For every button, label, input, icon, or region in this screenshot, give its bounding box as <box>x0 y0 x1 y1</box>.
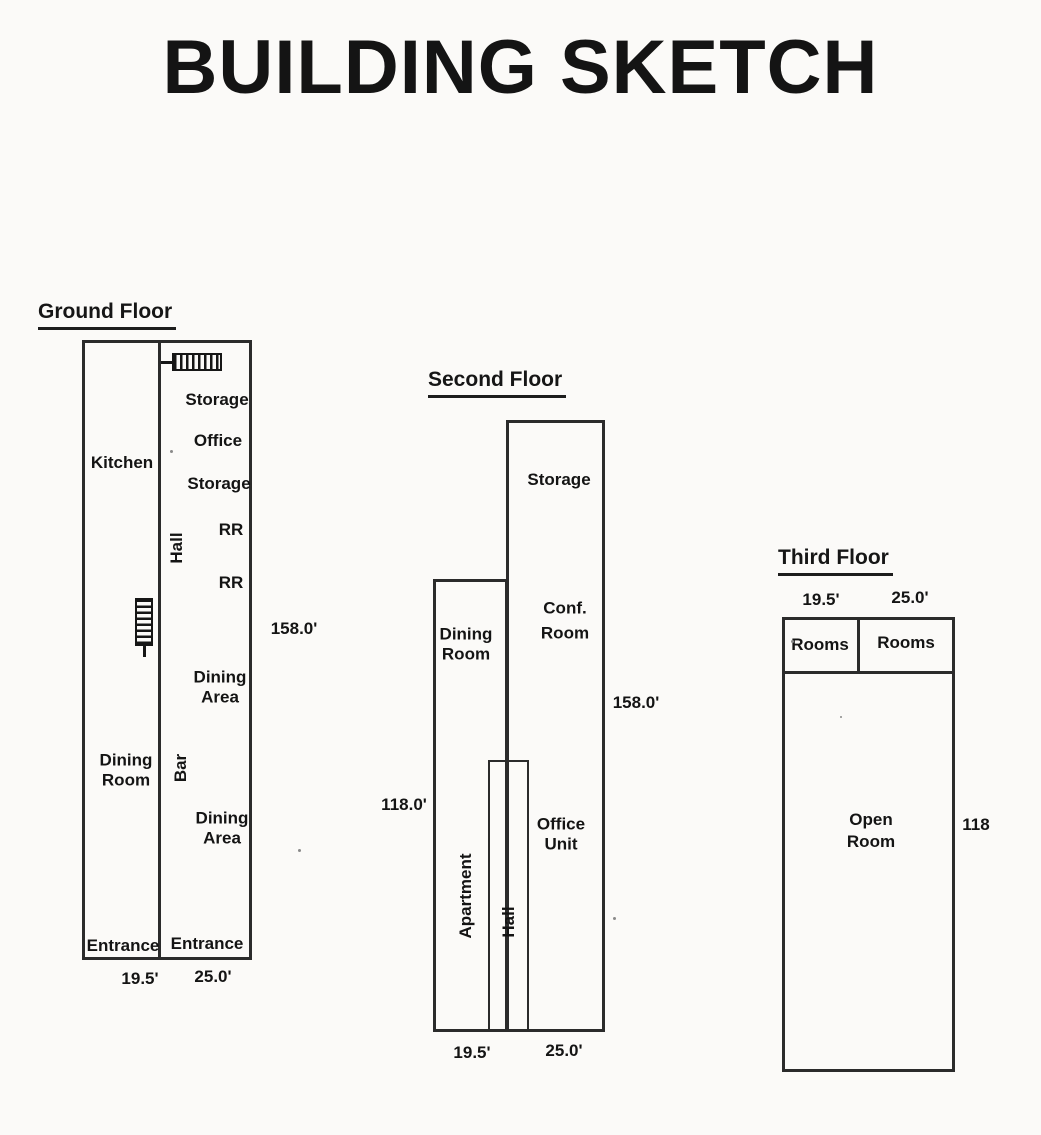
room-label-dining-area-lower: Dining Area <box>189 809 255 850</box>
room-label-rr-upper: RR <box>219 520 244 540</box>
room-label-hall: Hall <box>167 532 187 563</box>
dimension-label-third-depth: 118 <box>962 815 989 835</box>
dimension-label-second-right-depth: 158.0' <box>613 693 660 713</box>
room-label-bar: Bar <box>171 754 191 782</box>
room-label-dining-area-upper: Dining Area <box>187 668 253 709</box>
scan-speck <box>170 450 173 453</box>
dimension-label-third-right-width: 25.0' <box>891 588 928 608</box>
room-label-storage-top: Storage <box>185 390 248 410</box>
third-floor-rooms-center-wall <box>857 617 860 673</box>
building-sketch-sheet: BUILDING SKETCH Ground Floor Kitchen Sto… <box>0 0 1041 1135</box>
room-label-storage-mid: Storage <box>187 474 250 494</box>
room-label-rooms-right: Rooms <box>877 633 935 653</box>
stairs-icon <box>172 353 222 371</box>
dimension-label-second-left-width: 19.5' <box>453 1043 490 1063</box>
room-label-dining-room: Dining Room <box>436 625 496 666</box>
second-floor-heading: Second Floor <box>428 368 566 398</box>
stairs-icon-landing-line <box>143 646 146 657</box>
dimension-label-third-left-width: 19.5' <box>802 590 839 610</box>
stairs-icon-landing-line <box>161 361 172 364</box>
room-label-storage: Storage <box>527 470 590 490</box>
dimension-label-ground-left-width: 19.5' <box>121 969 158 989</box>
room-label-rr-lower: RR <box>219 573 244 593</box>
page-title: BUILDING SKETCH <box>0 24 1041 111</box>
ground-floor-heading: Ground Floor <box>38 300 176 330</box>
third-floor-rooms-divider-wall <box>782 671 955 674</box>
dimension-label-ground-depth: 158.0' <box>271 619 318 639</box>
scan-speck <box>298 849 301 852</box>
dimension-label-second-left-depth: 118.0' <box>381 795 427 815</box>
room-label-rooms-left: Rooms <box>791 635 849 655</box>
room-label-apartment: Apartment <box>456 853 476 938</box>
room-label-entrance-right: Entrance <box>171 934 244 954</box>
room-label-kitchen: Kitchen <box>91 453 153 473</box>
room-label-open-room: Open Room <box>842 809 900 853</box>
scan-speck <box>840 716 842 718</box>
dimension-label-second-right-width: 25.0' <box>545 1041 582 1061</box>
room-label-office: Office <box>194 431 242 451</box>
room-label-conf-room: Conf. Room <box>532 596 598 645</box>
scan-speck <box>613 917 616 920</box>
room-label-office-unit: Office Unit <box>531 815 591 856</box>
dimension-label-ground-right-width: 25.0' <box>194 967 231 987</box>
scan-speck <box>791 640 794 643</box>
second-floor-hall-corridor-outline <box>488 760 529 1032</box>
stairs-icon <box>135 598 153 646</box>
room-label-entrance-left: Entrance <box>87 936 160 956</box>
room-label-dining-room: Dining Room <box>96 751 156 792</box>
room-label-hall: Hall <box>499 906 519 937</box>
third-floor-heading: Third Floor <box>778 546 893 576</box>
ground-floor-divider-wall <box>158 340 161 960</box>
